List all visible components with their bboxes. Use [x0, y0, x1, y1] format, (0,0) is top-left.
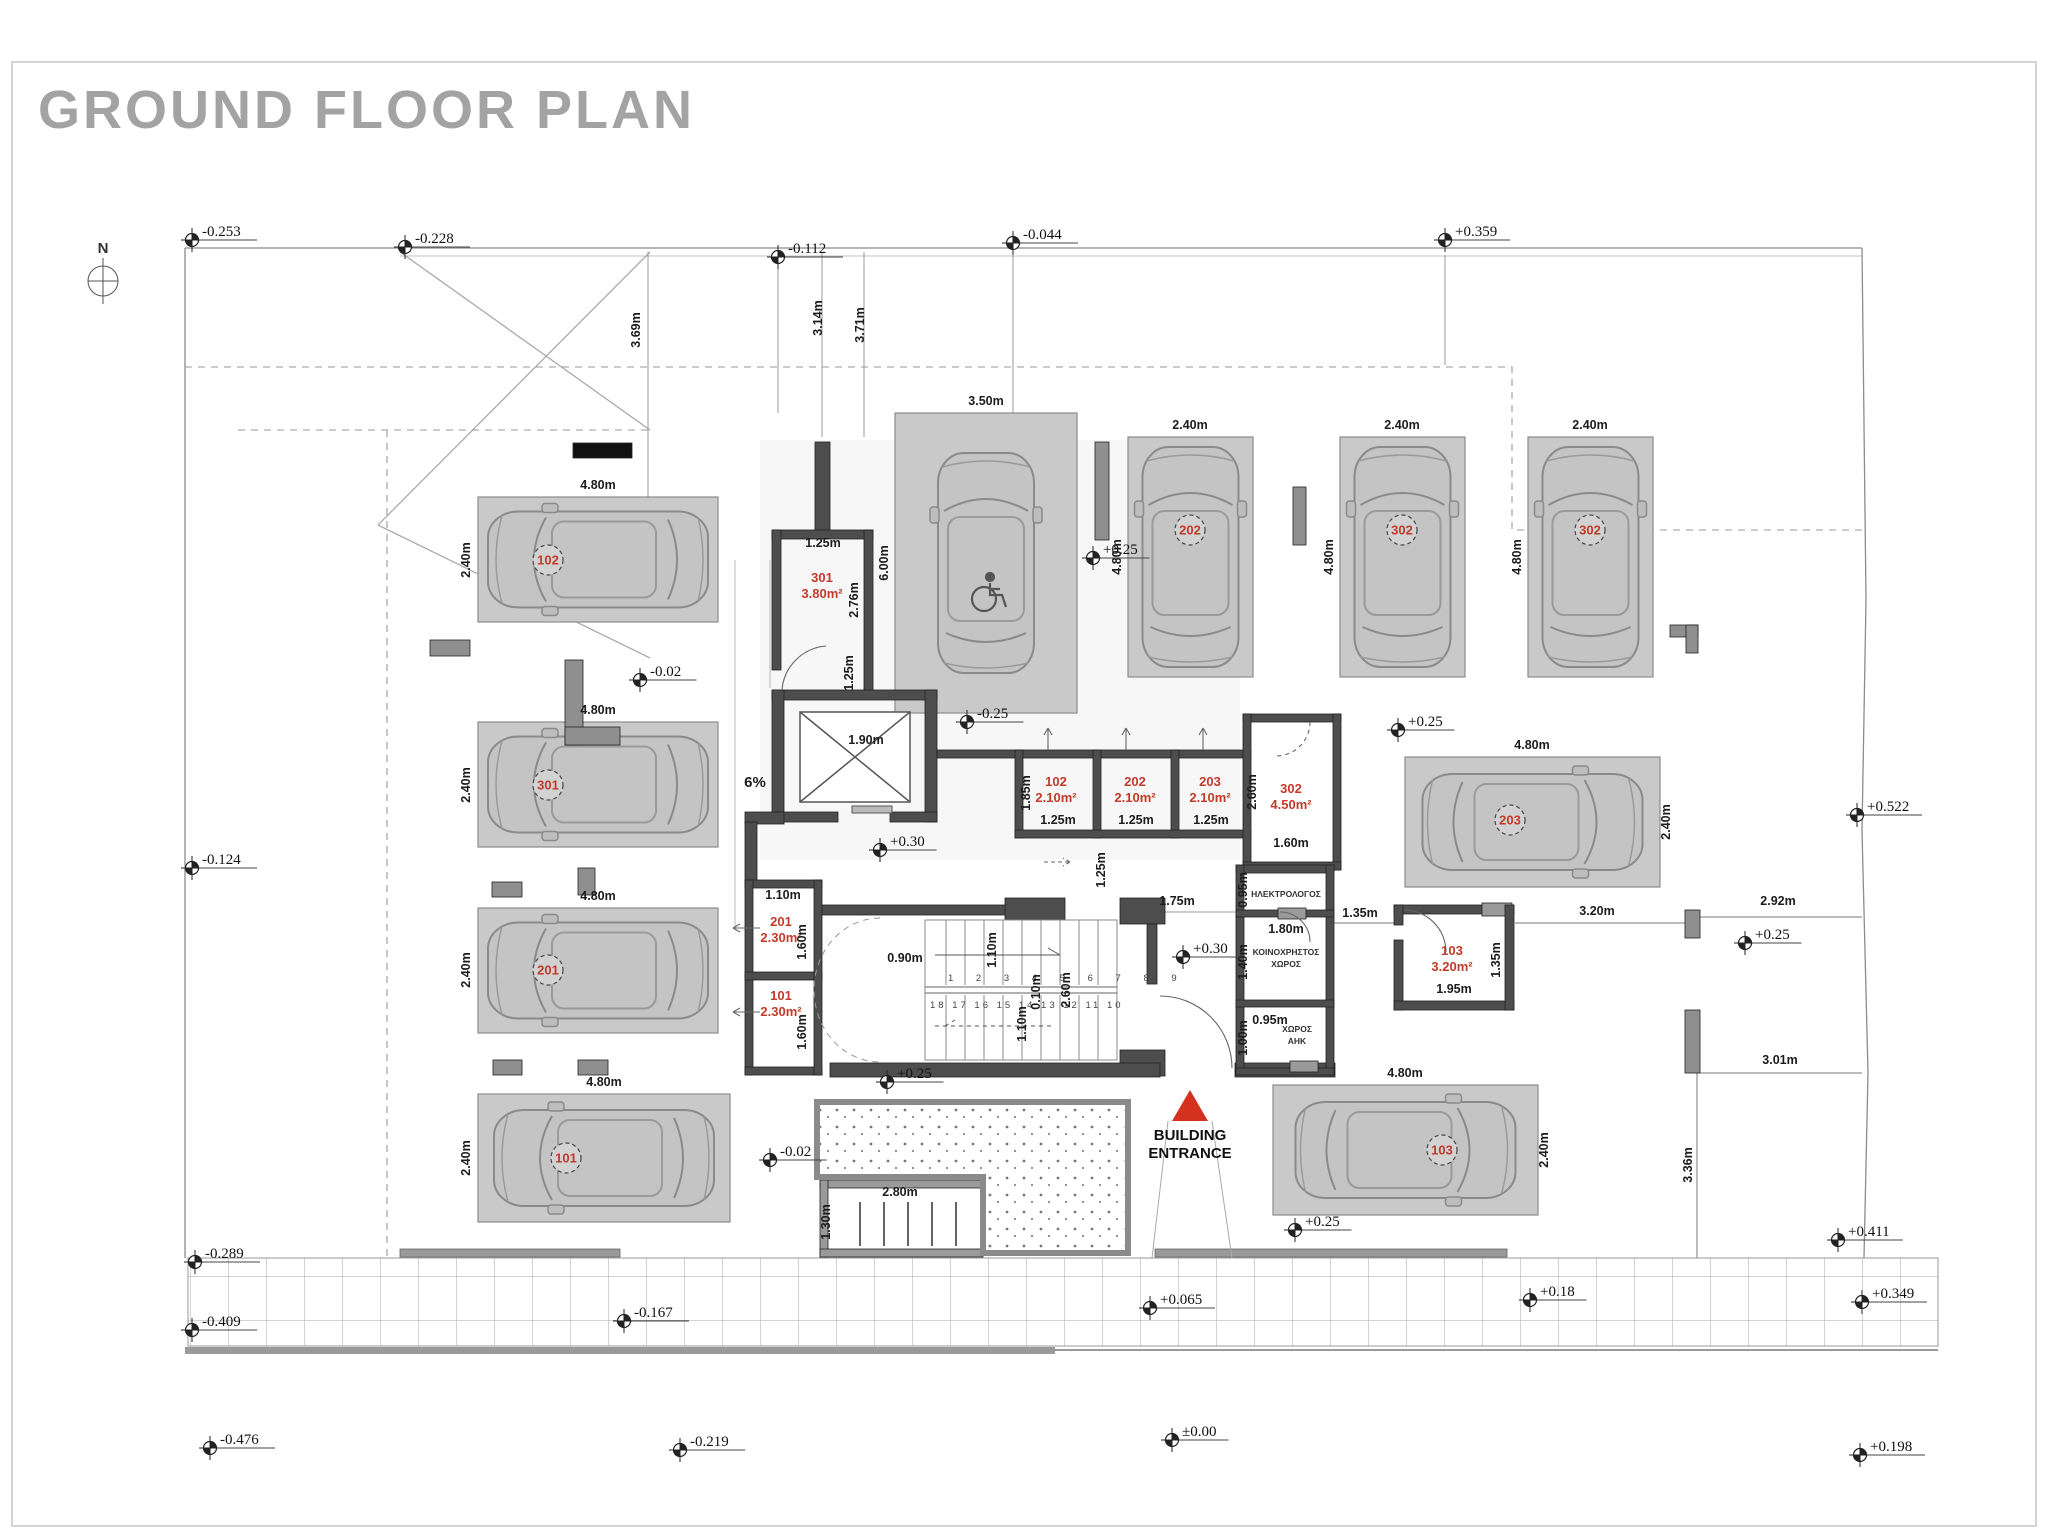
dim-label: 2.60m: [1059, 972, 1073, 1007]
elevation-value: +0.522: [1867, 799, 1909, 815]
storage-area: 3.20m²: [1431, 959, 1473, 974]
dim-label: 1.35m: [1342, 906, 1377, 920]
storage-label-103: 1033.20m²: [1431, 943, 1473, 974]
elevation-value: +0.25: [1103, 542, 1138, 558]
elevation-value: -0.289: [205, 1246, 244, 1262]
storage-area: 3.80m²: [801, 586, 843, 601]
room-label: ΗΛΕΚΤΡΟΛΟΓΟΣ: [1251, 889, 1321, 899]
room-label: ΚΟΙΝΟΧΡΗΣΤΟΣΧΩΡΟΣ: [1253, 947, 1320, 969]
elevator-shaft: [800, 712, 910, 813]
elevation-marker: -0.02: [629, 664, 697, 692]
room-label: ΧΩΡΟΣΑΗΚ: [1282, 1024, 1312, 1046]
parking-spot-102: 102: [478, 497, 718, 622]
building-entrance: BUILDING ENTRANCE: [1148, 1090, 1232, 1258]
dim-label: 4.80m: [1322, 539, 1336, 574]
dim-label: 1.25m: [1094, 852, 1108, 887]
dim-label: 2.40m: [1537, 1132, 1551, 1167]
parking-spot-203: 203: [1405, 757, 1660, 887]
dim-label: 2.80m: [882, 1185, 917, 1199]
spot-number: 203: [1499, 813, 1521, 828]
elevation-value: ±0.00: [1182, 1424, 1216, 1440]
storage-number: 101: [770, 988, 792, 1003]
elevation-marker: -0.044: [1002, 227, 1078, 255]
spot-number: 101: [555, 1151, 577, 1166]
dim-label: 2.76m: [847, 582, 861, 617]
parking-spot-101: 101: [478, 1094, 730, 1222]
svg-text:ΗΛΕΚΤΡΟΛΟΓΟΣ: ΗΛΕΚΤΡΟΛΟΓΟΣ: [1251, 889, 1321, 899]
dim-label: 3.36m: [1681, 1147, 1695, 1182]
spot-number: 102: [537, 553, 559, 568]
dim-label: 0.10m: [1029, 974, 1043, 1009]
entrance-triangle-icon: [1172, 1090, 1208, 1121]
spot-number: 302: [1579, 523, 1601, 538]
dim-label: 0.95m: [1236, 872, 1250, 907]
dim-label: 1.10m: [765, 888, 800, 902]
dim-label: 4.80m: [580, 889, 615, 903]
dim-label: 3.69m: [629, 312, 643, 347]
sidewalk: [185, 1249, 1938, 1354]
elevation-value: +0.30: [1193, 941, 1228, 957]
elevation-value: -0.253: [202, 224, 241, 240]
parking-spot-302: 302: [1340, 437, 1465, 677]
storage-number: 302: [1280, 781, 1302, 796]
elevation-marker: +0.25: [1734, 927, 1802, 955]
elevation-value: +0.25: [1755, 927, 1790, 943]
ramp-slope-label: 6%: [744, 774, 766, 791]
elevation-marker: +0.25: [1387, 714, 1455, 742]
elevation-value: -0.112: [788, 241, 826, 257]
elevation-marker: -0.112: [767, 241, 843, 269]
dim-label: 1.80m: [1268, 922, 1303, 936]
storage-number: 301: [811, 570, 833, 585]
elevation-value: +0.25: [1408, 714, 1443, 730]
elevation-marker: -0.228: [394, 231, 470, 259]
spot-number: 301: [537, 778, 559, 793]
dim-label: 3.71m: [853, 307, 867, 342]
dim-label: 1.25m: [1040, 813, 1075, 827]
page-title: GROUND FLOOR PLAN: [38, 80, 695, 140]
dim-label: 1.25m: [1193, 813, 1228, 827]
elevation-value: +0.30: [890, 834, 925, 850]
dim-label: 1.10m: [1015, 1006, 1029, 1041]
elevation-value: -0.476: [220, 1432, 259, 1448]
car-top-icon: [494, 1102, 714, 1214]
parking-spot-202: 202: [1128, 437, 1253, 677]
entrance-label-1: BUILDING: [1154, 1127, 1227, 1144]
floor-plan-sheet: GROUND FLOOR PLAN N: [0, 0, 2048, 1536]
storage-area: 2.10m²: [1114, 790, 1156, 805]
car-top-icon: [930, 453, 1042, 673]
dim-label: 1.40m: [1236, 944, 1250, 979]
entrance-label-2: ENTRANCE: [1148, 1145, 1231, 1162]
dim-label: 4.80m: [1387, 1066, 1422, 1080]
dim-label: 2.40m: [1659, 804, 1673, 839]
dim-label: 4.80m: [586, 1075, 621, 1089]
elevation-marker: +0.30: [1172, 941, 1240, 969]
dim-label: 1.25m: [805, 536, 840, 550]
dim-label: 1.75m: [1159, 894, 1194, 908]
dim-label: 2.40m: [459, 1140, 473, 1175]
elevation-value: -0.124: [202, 852, 241, 868]
elevation-value: -0.044: [1023, 227, 1062, 243]
storage-label-302: 3024.50m²: [1270, 781, 1312, 812]
dim-label: 1.60m: [795, 924, 809, 959]
north-arrow-icon: N: [88, 240, 118, 304]
elevation-marker: +0.198: [1849, 1439, 1925, 1467]
dim-label: 6.00m: [877, 545, 891, 580]
elevation-value: -0.219: [690, 1434, 729, 1450]
parking-spot-disabled: [895, 413, 1077, 713]
elevation-value: -0.228: [415, 231, 454, 247]
parking-spot-302: 302: [1528, 437, 1653, 677]
car-top-icon: [488, 915, 708, 1027]
elevation-value: +0.349: [1872, 1286, 1914, 1302]
svg-text:ΚΟΙΝΟΧΡΗΣΤΟΣ: ΚΟΙΝΟΧΡΗΣΤΟΣ: [1253, 947, 1320, 957]
elevation-value: +0.198: [1870, 1439, 1912, 1455]
dim-label: 2.40m: [1172, 418, 1207, 432]
dim-label: 3.20m: [1579, 904, 1614, 918]
elevation-value: -0.02: [780, 1144, 811, 1160]
dim-label: 2.40m: [459, 542, 473, 577]
elevation-value: -0.167: [634, 1305, 673, 1321]
dim-label: 3.50m: [968, 394, 1003, 408]
svg-text:ΑΗΚ: ΑΗΚ: [1288, 1036, 1307, 1046]
elevation-marker: -0.476: [199, 1432, 275, 1460]
storage-number: 103: [1441, 943, 1463, 958]
dim-label: 0.90m: [887, 951, 922, 965]
storage-area: 4.50m²: [1270, 797, 1312, 812]
elevation-marker: -0.219: [669, 1434, 745, 1462]
dim-label: 4.80m: [1514, 738, 1549, 752]
dim-label: 4.80m: [580, 478, 615, 492]
dim-label: 2.60m: [1245, 774, 1259, 809]
car-top-icon: [1423, 766, 1643, 878]
storage-number: 203: [1199, 774, 1221, 789]
floor-plan-canvas: GROUND FLOOR PLAN N: [0, 0, 2048, 1536]
dim-label: 1.25m: [1118, 813, 1153, 827]
dim-label: 2.92m: [1760, 894, 1795, 908]
north-label: N: [98, 240, 109, 257]
storage-number: 201: [770, 914, 792, 929]
elevation-value: +0.411: [1848, 1224, 1890, 1240]
bike-rack: [860, 1202, 956, 1246]
storage-number: 102: [1045, 774, 1067, 789]
spot-number: 201: [537, 963, 559, 978]
elevation-marker: ±0.00: [1161, 1424, 1229, 1452]
parking-spot-103: 103: [1273, 1085, 1538, 1215]
elevation-marker: +0.411: [1827, 1224, 1903, 1252]
car-top-icon: [1296, 1094, 1516, 1206]
spot-number: 302: [1391, 523, 1413, 538]
elevation-value: +0.25: [1305, 1214, 1340, 1230]
elevation-value: -0.02: [650, 664, 681, 680]
dim-label: 2.40m: [459, 767, 473, 802]
dim-label: 1.95m: [1436, 982, 1471, 996]
dim-label: 3.14m: [811, 300, 825, 335]
elevation-value: +0.359: [1455, 224, 1497, 240]
dim-label: 3.01m: [1762, 1053, 1797, 1067]
car-top-icon: [488, 504, 708, 616]
planter-area: [817, 1102, 1128, 1253]
dim-label: 1.00m: [1236, 1020, 1250, 1055]
spot-number: 202: [1179, 523, 1201, 538]
dim-label: 1.25m: [842, 655, 856, 690]
dim-label: 2.40m: [459, 952, 473, 987]
dim-label: 1.30m: [819, 1204, 833, 1239]
svg-text:ΧΩΡΟΣ: ΧΩΡΟΣ: [1271, 959, 1301, 969]
storage-area: 2.10m²: [1035, 790, 1077, 805]
storage-area: 2.10m²: [1189, 790, 1231, 805]
car-top-icon: [1135, 447, 1247, 667]
dim-label: 0.95m: [1252, 1013, 1287, 1027]
spot-number: 103: [1431, 1143, 1453, 1158]
dim-label: 1.90m: [848, 733, 883, 747]
car-top-icon: [1535, 447, 1647, 667]
elevation-marker: +0.522: [1846, 799, 1922, 827]
elevation-marker: +0.25: [1284, 1214, 1352, 1242]
elevation-marker: -0.124: [181, 852, 257, 880]
storage-number: 202: [1124, 774, 1146, 789]
dim-label: 1.10m: [985, 932, 999, 967]
dim-label: 1.85m: [1019, 775, 1033, 810]
dim-label: 4.80m: [1510, 539, 1524, 574]
dim-label: 1.60m: [795, 1014, 809, 1049]
elevation-value: -0.25: [977, 706, 1008, 722]
car-top-icon: [1347, 447, 1459, 667]
dim-label: 1.35m: [1489, 942, 1503, 977]
elevation-value: +0.18: [1540, 1284, 1575, 1300]
dim-label: 2.40m: [1384, 418, 1419, 432]
parking-spot-201: 201: [478, 908, 718, 1033]
elevation-value: +0.065: [1160, 1292, 1202, 1308]
elevation-value: +0.25: [897, 1066, 932, 1082]
dim-label: 4.80m: [580, 703, 615, 717]
elevation-value: -0.409: [202, 1314, 241, 1330]
dim-label: 2.40m: [1572, 418, 1607, 432]
dim-label: 1.60m: [1273, 836, 1308, 850]
